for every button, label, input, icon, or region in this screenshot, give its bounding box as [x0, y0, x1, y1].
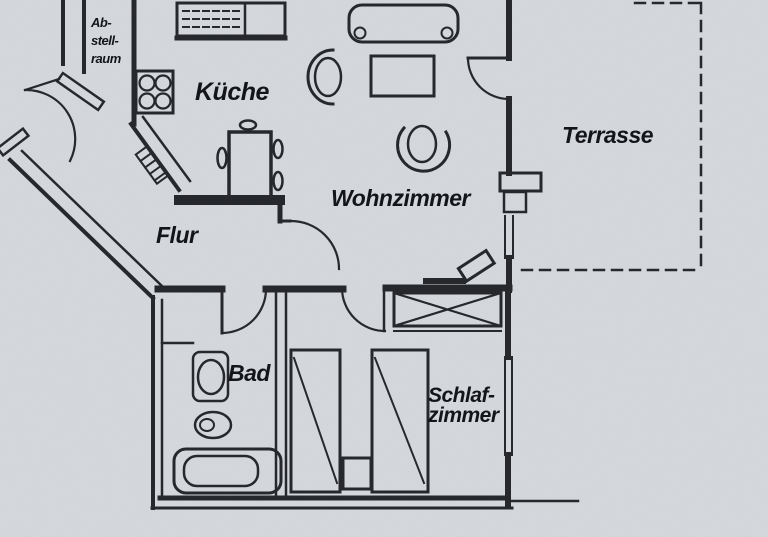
room-label-kueche: Küche: [195, 78, 270, 106]
room-label-flur: Flur: [156, 222, 199, 248]
room-label-terrasse: Terrasse: [562, 122, 654, 148]
room-label-schlafzimmer: zimmer: [427, 404, 501, 427]
floor-plan: Ab- stell- raum Küche Wohnzimmer Terrass…: [0, 0, 768, 537]
room-label-abstellraum: Ab-: [90, 15, 111, 30]
paper-texture: [0, 0, 768, 537]
room-label-abstellraum: raum: [91, 51, 122, 66]
room-label-wohnzimmer: Wohnzimmer: [331, 185, 472, 211]
wall-bedroom-bath-top: [158, 288, 509, 289]
room-label-bad: Bad: [228, 360, 271, 386]
floor-plan-canvas: Ab- stell- raum Küche Wohnzimmer Terrass…: [0, 0, 768, 537]
room-label-abstellraum: stell-: [91, 33, 119, 48]
